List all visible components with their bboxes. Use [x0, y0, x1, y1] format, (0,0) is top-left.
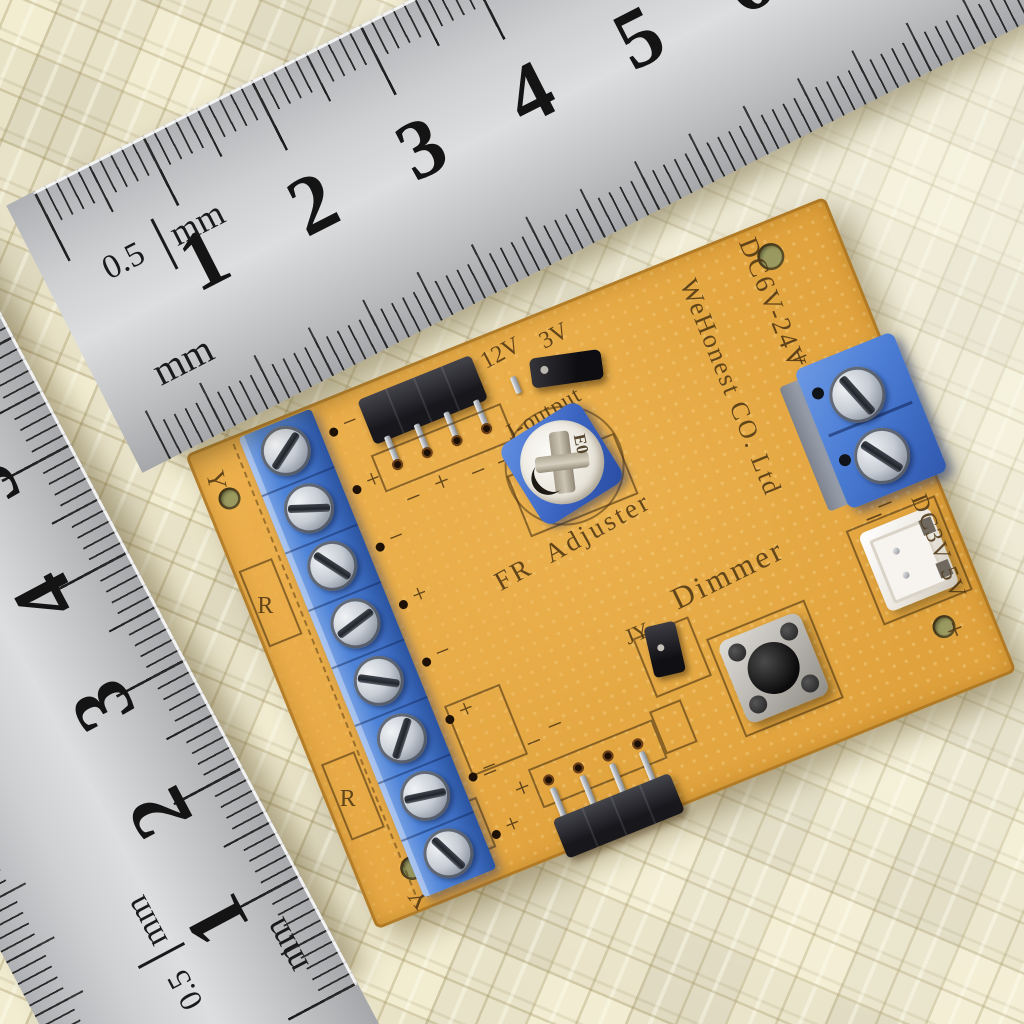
- header-polarity-mark: −: [401, 483, 426, 515]
- trimmer-marking: E0: [569, 432, 593, 456]
- ruler-number: 5: [576, 0, 703, 98]
- ruler-number: 6: [684, 0, 811, 43]
- header-polarity-mark: −: [466, 456, 491, 488]
- solder-pad-dot: [374, 541, 386, 553]
- photo-scene: R R Y Y − + −: [0, 0, 1024, 1024]
- silkscreen-r1-label: R: [257, 594, 273, 618]
- strip-polarity-mark: −: [385, 522, 408, 552]
- jumper-pin: [510, 375, 522, 394]
- solder-pad-dot: [421, 656, 433, 668]
- strip-polarity-mark: +: [408, 579, 431, 609]
- solder-pad-dot: [351, 484, 363, 496]
- ruler-number: 3: [358, 89, 485, 209]
- header-polarity-mark: +: [429, 467, 454, 499]
- silkscreen-r2-label: R: [340, 787, 356, 811]
- strip-polarity-mark: +: [501, 809, 524, 839]
- solder-pad-dot: [328, 426, 340, 438]
- silkscreen-3v-label: 3V: [535, 319, 572, 354]
- silkscreen-dimmer-label: Dimmer: [666, 533, 789, 614]
- jumper-cap: [529, 349, 604, 389]
- header-polarity-mark: −: [543, 710, 568, 742]
- silkscreen-12v-label: 12V: [477, 333, 525, 374]
- strip-polarity-mark: −: [338, 407, 361, 437]
- ruler-number: 4: [467, 33, 594, 153]
- ruler-number: 2: [249, 144, 376, 264]
- strip-polarity-mark: −: [431, 637, 454, 667]
- button-plunger: [740, 634, 808, 702]
- solder-pad-dot: [398, 599, 410, 611]
